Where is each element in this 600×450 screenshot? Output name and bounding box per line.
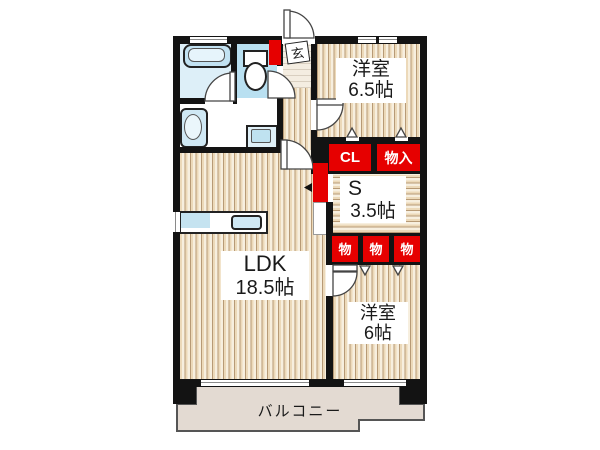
service-room-size: 3.5帖: [342, 201, 404, 222]
balcony-stub-left: [173, 379, 196, 404]
toilet-door-gap: [277, 66, 283, 98]
bathroom-window: [190, 37, 227, 43]
storage-tall: [313, 163, 328, 202]
closet-monoire-label: 物入: [385, 151, 413, 165]
bedroom2-balcony-window: [344, 380, 406, 386]
wall-ldk-bedroom2: [326, 296, 333, 379]
closet-monoire: 物入: [377, 144, 420, 171]
vanity-sink-basin: [184, 114, 202, 140]
closet-mono-3: 物: [394, 236, 420, 262]
closet-cl-label: CL: [340, 150, 360, 165]
balcony-name: バルコニー: [258, 403, 343, 420]
wall-right: [420, 36, 427, 387]
shoe-box: [269, 40, 281, 65]
bedroom1-window-b: [379, 37, 397, 43]
bedroom2-name: 洋室: [350, 303, 406, 323]
closet-mono-2-label: 物: [369, 243, 382, 256]
wall-bath-toilet: [231, 42, 237, 98]
bedroom1-door-gap: [311, 100, 317, 130]
bedroom1-name: 洋室: [338, 59, 404, 80]
ldk-size: 18.5帖: [223, 277, 307, 299]
kitchen-window: [173, 212, 180, 232]
bedroom2-size: 6帖: [350, 323, 406, 343]
service-room-name: S: [342, 177, 404, 201]
bedroom1-window-a: [358, 37, 376, 43]
entrance-door-arc: [287, 11, 314, 38]
bedroom1-size: 6.5帖: [338, 80, 404, 101]
entrance-name: 玄: [290, 42, 306, 63]
ldk-balcony-window: [201, 380, 309, 386]
entrance-door-leaf: [284, 10, 290, 38]
washing-machine-inner: [251, 129, 271, 143]
ldk-name: LDK: [223, 252, 307, 277]
entrance-label: 玄: [285, 41, 311, 65]
closet-mono-3-label: 物: [400, 243, 413, 256]
closet-mono-2: 物: [363, 236, 389, 262]
balcony-label: バルコニー: [235, 400, 365, 421]
service-room-label: S 3.5帖: [340, 176, 406, 223]
bath-door-gap: [205, 98, 233, 104]
ldk-label: LDK 18.5帖: [221, 251, 309, 300]
bedroom1-label: 洋室 6.5帖: [336, 58, 406, 103]
bathtub-inner: [188, 48, 225, 62]
closet-cl: CL: [329, 144, 371, 171]
kitchen-counter-blue: [181, 213, 210, 228]
toilet-bowl: [244, 62, 267, 91]
closet-mono-1-label: 物: [338, 243, 351, 256]
closet-mono-1: 物: [332, 236, 358, 262]
kitchen-sink: [231, 215, 262, 230]
wall-service-left: [326, 202, 333, 233]
bedroom2-label: 洋室 6帖: [348, 302, 408, 344]
floorplan-canvas: CL 物入 物 物 物 洋室 6.5帖 S 3.5帖 洋室 6帖 LDK 18.…: [0, 0, 600, 450]
wall-washroom-ldk: [173, 147, 283, 153]
